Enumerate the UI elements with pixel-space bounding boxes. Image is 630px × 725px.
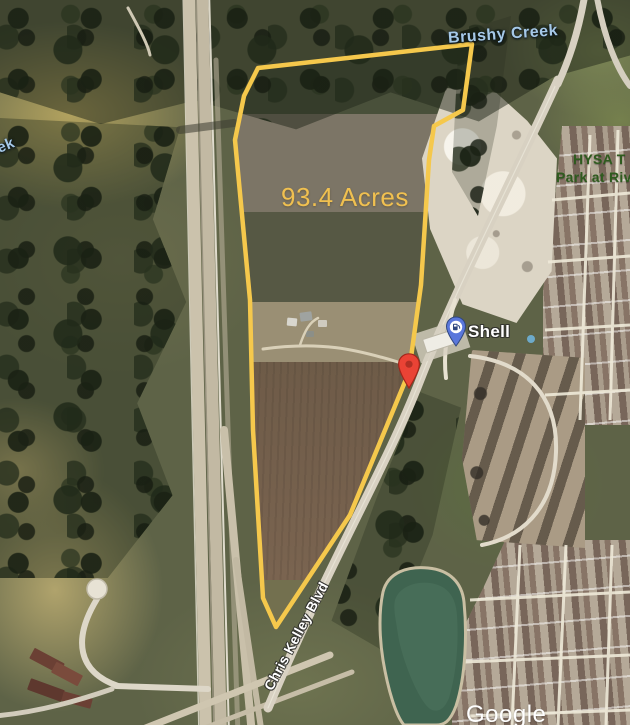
farm-driveway: [300, 318, 318, 345]
water-tank: [87, 579, 107, 599]
street: [512, 545, 520, 725]
red-pin-dot: [405, 361, 412, 368]
acreage-label: 93.4 Acres: [281, 182, 409, 213]
road-segment: [558, 0, 585, 84]
street: [548, 256, 630, 262]
road-segment: [596, 0, 630, 86]
park-label-line1: HYSA T: [573, 151, 626, 167]
loop-road: [82, 599, 118, 686]
access-road: [0, 689, 112, 716]
park-label-line2: Park at Riv: [556, 169, 630, 185]
street: [552, 193, 630, 200]
subdivision-road: [470, 356, 556, 545]
street: [545, 325, 630, 330]
map-canvas[interactable]: Brushy Creek ek 93.4 Acres HYSA T Park a…: [0, 0, 630, 725]
gas-station-label[interactable]: Shell: [468, 322, 510, 342]
gas-pump-window: [454, 325, 457, 327]
trail: [128, 8, 150, 55]
google-watermark: Google: [466, 701, 546, 725]
swimming-pool: [527, 335, 535, 343]
street: [606, 545, 612, 725]
pond: [380, 568, 465, 725]
street: [470, 592, 630, 600]
gas-pump-icon: [453, 324, 458, 330]
street: [545, 390, 630, 395]
street: [558, 545, 566, 725]
farm-driveway: [263, 346, 398, 362]
access-road: [116, 686, 208, 689]
street: [465, 655, 630, 662]
